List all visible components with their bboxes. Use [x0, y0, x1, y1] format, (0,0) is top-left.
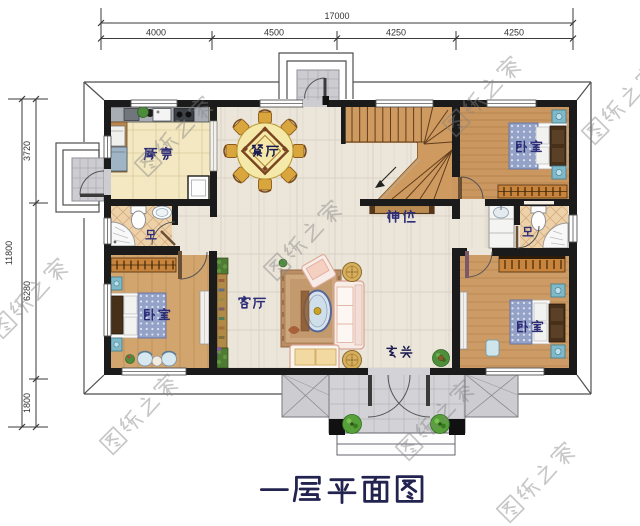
svg-text:4250: 4250	[386, 28, 406, 38]
svg-text:6280: 6280	[22, 281, 32, 301]
svg-text:11800: 11800	[4, 241, 14, 265]
svg-text:17000: 17000	[324, 11, 349, 21]
svg-text:4250: 4250	[504, 28, 524, 38]
svg-text:4500: 4500	[264, 28, 284, 38]
svg-text:1800: 1800	[22, 393, 32, 413]
svg-text:4000: 4000	[146, 28, 166, 38]
svg-text:3720: 3720	[22, 141, 32, 161]
